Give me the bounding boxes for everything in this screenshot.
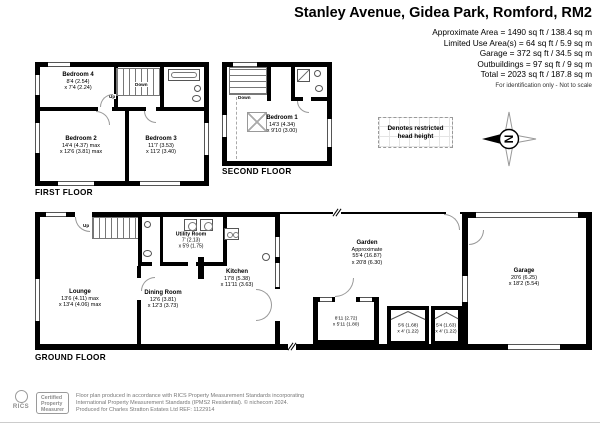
compass-letter: N [502, 135, 516, 144]
sink-icon [144, 221, 151, 228]
window [48, 62, 70, 67]
page-bottom-rule [0, 422, 600, 423]
room-label-bedroom2: Bedroom 2 14'4 (4.37) max x 12'6 (3.81) … [60, 136, 102, 156]
area-summary: Approximate Area = 1490 sq ft / 138.4 sq… [432, 27, 592, 92]
washer-icon [184, 219, 197, 231]
gable-line [408, 311, 426, 320]
window [58, 181, 94, 186]
footer-disclaimer: Floor plan produced in accordance with R… [76, 393, 304, 414]
ground-floor-title: GROUND FLOOR [35, 353, 106, 362]
dryer-drum [204, 222, 213, 231]
wall [198, 257, 204, 279]
window [46, 212, 66, 217]
door-arc [141, 277, 155, 291]
certified-property-measurer-badge: Certified Property Measurer [36, 392, 69, 414]
window [508, 344, 560, 350]
area-line: Limited Use Area(s) = 64 sq ft / 5.9 sq … [432, 38, 592, 49]
second-floor-title: SECOND FLOOR [222, 167, 292, 176]
door-arc [335, 278, 354, 297]
wall [156, 107, 204, 111]
garden-fence-line [280, 212, 462, 214]
patio-door-opening [275, 289, 280, 321]
staircase [92, 217, 140, 239]
door-opening [335, 297, 356, 302]
staircase [229, 67, 267, 95]
window [462, 276, 468, 302]
wall [267, 67, 271, 101]
sink-icon [194, 85, 201, 92]
rics-logo: RICS [10, 390, 32, 410]
wall [160, 67, 164, 107]
boundary-break [333, 208, 341, 217]
door-arc [256, 289, 272, 305]
label-outbuilding-1: 8'11 (2.72) x 5'11 (1.80) [333, 316, 359, 327]
washer-drum [188, 222, 197, 231]
footer-line: International Property Measurement Stand… [76, 400, 304, 407]
front-door-arc [75, 217, 90, 232]
first-floor-plan: Up Down [35, 62, 209, 186]
stairs-down-label: Down [134, 82, 149, 87]
wall [137, 300, 141, 345]
room-label-lounge: Lounge 13'6 (4.11) max x 13'4 (4.06) max [59, 289, 101, 309]
window [233, 62, 257, 67]
bathtub-inner [171, 72, 197, 78]
first-floor-title: FIRST FLOOR [35, 188, 93, 197]
toilet-icon [143, 250, 152, 257]
door-arc [100, 94, 113, 107]
floorplan-page: Stanley Avenue, Gidea Park, Romford, RM2… [0, 0, 600, 424]
room-label-bedroom3: Bedroom 3 11'7 (3.53) x 11'2 (3.40) [145, 136, 176, 156]
shower-icon [297, 69, 310, 82]
room-label-utility: Utility Room 7' (2.13) x 5'9 (1.75) [176, 232, 207, 249]
wall [137, 266, 141, 278]
window [140, 181, 180, 186]
wall [160, 217, 163, 262]
garage-door [476, 212, 578, 218]
window [275, 237, 280, 257]
area-line: Outbuildings = 97 sq ft / 9 sq m [432, 59, 592, 70]
window [360, 297, 372, 302]
stove-burner [233, 232, 239, 238]
window [35, 75, 40, 95]
bathtub-icon [168, 69, 200, 81]
door-arc [144, 111, 156, 123]
room-label-bedroom1: Bedroom 1 14'3 (4.34) x 9'10 (3.00) [266, 115, 297, 135]
wall [291, 67, 295, 97]
door-arc [256, 305, 272, 321]
room-label-bedroom4: Bedroom 4 8'4 (2.54) x 7'4 (2.24) [62, 72, 93, 92]
toilet-icon [315, 85, 323, 92]
wall [125, 111, 129, 181]
rics-lion-emblem [15, 390, 28, 403]
stairs-down-label: Down [237, 95, 252, 100]
label-outbuilding-2: 5'6 (1.68) x 4' (1.22) [397, 323, 418, 334]
window [204, 123, 209, 155]
disclaimer-note: For identification only - Not to scale [432, 81, 592, 92]
gable-line [446, 312, 459, 319]
dryer-icon [200, 219, 213, 231]
compass-rose: N [478, 108, 540, 170]
room-label-dining: Dining Room 12'6 (3.81) x 12'3 (3.73) [144, 290, 181, 310]
window [320, 297, 332, 302]
sink-icon [314, 70, 321, 77]
window [275, 263, 280, 287]
bay-window [35, 279, 40, 321]
wall [40, 107, 98, 111]
label-outbuilding-3: 5'4 (1.63) x 4' (1.22) [435, 323, 456, 334]
boundary-break [288, 342, 296, 351]
rics-wordmark: RICS [10, 404, 32, 410]
area-line: Total = 2023 sq ft / 187.8 sq m [432, 69, 592, 80]
area-line: Approximate Area = 1490 sq ft / 138.4 sq… [432, 27, 592, 38]
stove-icon [224, 228, 239, 240]
room-label-kitchen: Kitchen 17'8 (5.38) x 11'11 (3.63) [221, 269, 254, 289]
restricted-head-height-line [236, 97, 237, 159]
wall [138, 217, 142, 262]
gable-line [391, 311, 409, 320]
wall [160, 262, 188, 266]
room-label-garage: Garage 20'6 (6.25) x 18'2 (5.54) [509, 268, 539, 288]
door-arc [96, 111, 110, 125]
toilet-icon [192, 95, 201, 102]
door-arc [297, 101, 309, 113]
footer-line: Floor plan produced in accordance with R… [76, 393, 304, 400]
area-line: Garage = 372 sq ft / 34.5 sq m [432, 48, 592, 59]
window [35, 123, 40, 153]
page-title: Stanley Avenue, Gidea Park, Romford, RM2 [294, 5, 592, 21]
window [222, 115, 227, 137]
gate-arc [444, 214, 460, 230]
area-label-garden: Garden Approximate 55'4 (16.87) x 20'8 (… [352, 240, 383, 266]
window [327, 119, 332, 147]
footer-line: Produced for Charles Stratton Estates Lt… [76, 407, 304, 414]
wall [112, 107, 146, 111]
restricted-height-legend: Denotes restricted head height [378, 117, 453, 148]
kitchen-sink-icon [262, 253, 270, 261]
restricted-head-height-marker [247, 112, 267, 132]
second-floor-plan: Down [222, 62, 332, 166]
wall [311, 97, 327, 101]
door-arc [469, 230, 484, 245]
